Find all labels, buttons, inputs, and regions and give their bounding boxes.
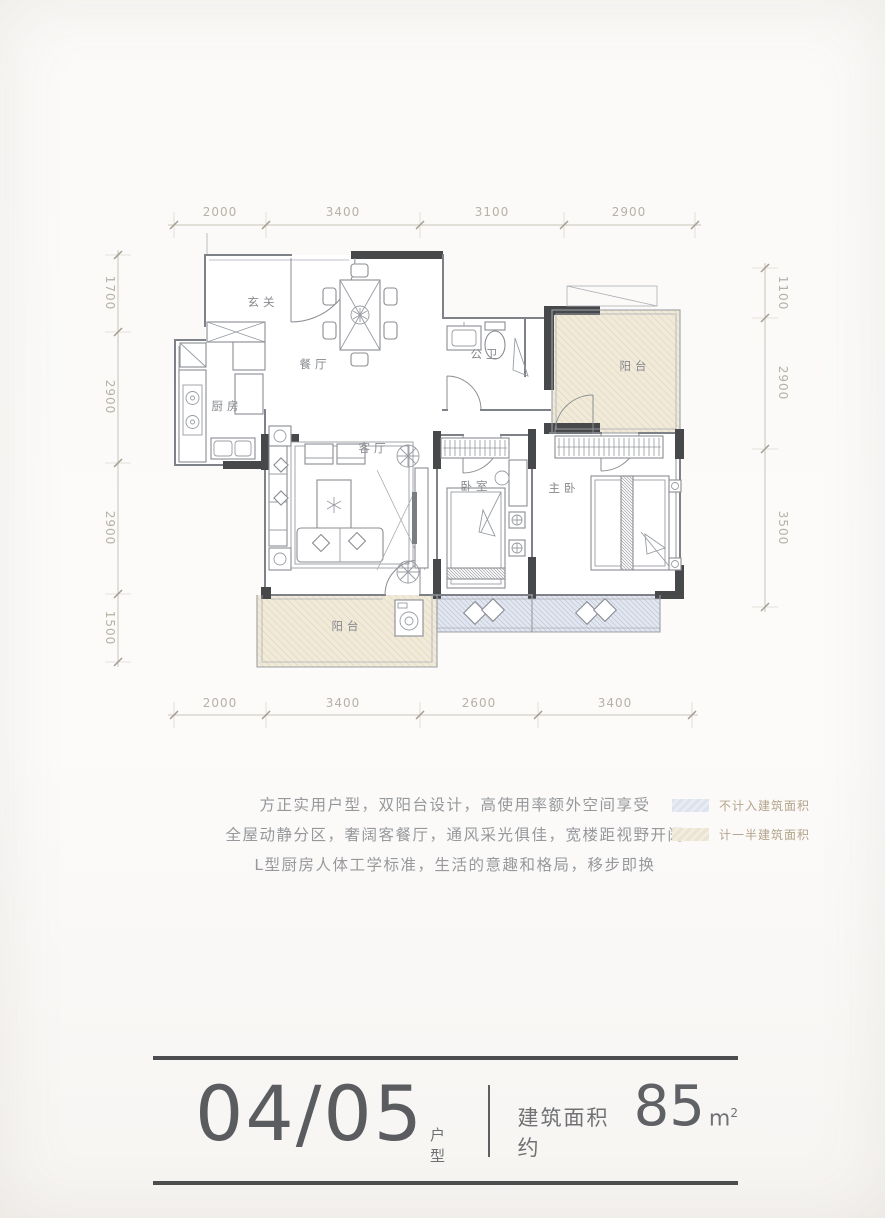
legend: 不计入建筑面积 计一半建筑面积 [672,797,810,855]
label-master: 主卧 [549,481,580,495]
description-line-3: L型厨房人体工学标准，生活的意趣和格局，移步即换 [105,856,805,874]
area-unit-sup: 2 [730,1106,738,1120]
footer-row: 04/05 户型 建筑面积约 85 m2 [153,1060,738,1181]
dim-bottom-4: 3400 [598,696,633,710]
label-entry: 玄关 [248,295,279,309]
area-group: 建筑面积约 85 m2 [518,1079,738,1162]
legend-label: 不计入建筑面积 [719,797,810,814]
floorplan-page: 2000 3400 3100 2900 2000 3400 2600 3400 [0,0,885,1218]
dim-right: 1100 2900 3500 [752,263,790,612]
unit-number-label: 户型 [430,1124,454,1166]
legend-swatch-tan [672,828,709,841]
label-kitchen: 厨房 [212,399,243,413]
dim-right-1: 1100 [776,276,790,311]
entry-cabinet [207,322,265,342]
dim-top-1: 2000 [203,205,238,219]
legend-swatch-blue [672,799,709,812]
dim-left-4: 1500 [103,611,117,646]
plant-icon [397,561,419,583]
dim-top-2: 3400 [326,205,361,219]
legend-item-excluded-area: 不计入建筑面积 [672,797,810,814]
dim-bottom-2: 3400 [326,696,361,710]
dim-bottom-1: 2000 [203,696,238,710]
washing-machine [395,600,423,636]
footer-bottom-rule [153,1181,738,1185]
area-prefix: 建筑面积约 [518,1102,624,1162]
area-unit: m2 [709,1106,738,1131]
dim-left: 1700 2900 2900 1500 [103,250,131,667]
label-balcony-bottom: 阳台 [332,619,363,633]
dim-left-2: 2900 [103,380,117,415]
unit-number: 04/05 [195,1076,424,1152]
dim-right-3: 3500 [776,511,790,546]
label-balcony-top: 阳台 [620,359,651,373]
legend-item-half-area: 计一半建筑面积 [672,826,810,843]
dim-top: 2000 3400 3100 2900 [168,205,701,238]
legend-label: 计一半建筑面积 [719,826,810,843]
label-bath: 公卫 [471,347,502,361]
unit-number-group: 04/05 户型 [195,1076,454,1166]
dim-bottom-3: 2600 [462,696,497,710]
plant-icon [397,445,419,467]
dim-top-4: 2900 [612,205,647,219]
dim-left-3: 2900 [103,511,117,546]
footer-band: 04/05 户型 建筑面积约 85 m2 [153,1056,738,1185]
balcony-top-fill [552,310,680,433]
label-bedroom: 卧室 [461,479,492,493]
label-living: 客厅 [359,441,390,455]
dim-top-3: 3100 [475,205,510,219]
dim-left-1: 1700 [103,276,117,311]
dim-bottom: 2000 3400 2600 3400 [168,696,698,728]
area-value: 85 [634,1079,705,1135]
floor-plan: 2000 3400 3100 2900 2000 3400 2600 3400 [85,180,845,760]
footer-divider [488,1085,490,1157]
label-dining: 餐厅 [300,357,331,371]
dim-right-2: 2900 [776,366,790,401]
